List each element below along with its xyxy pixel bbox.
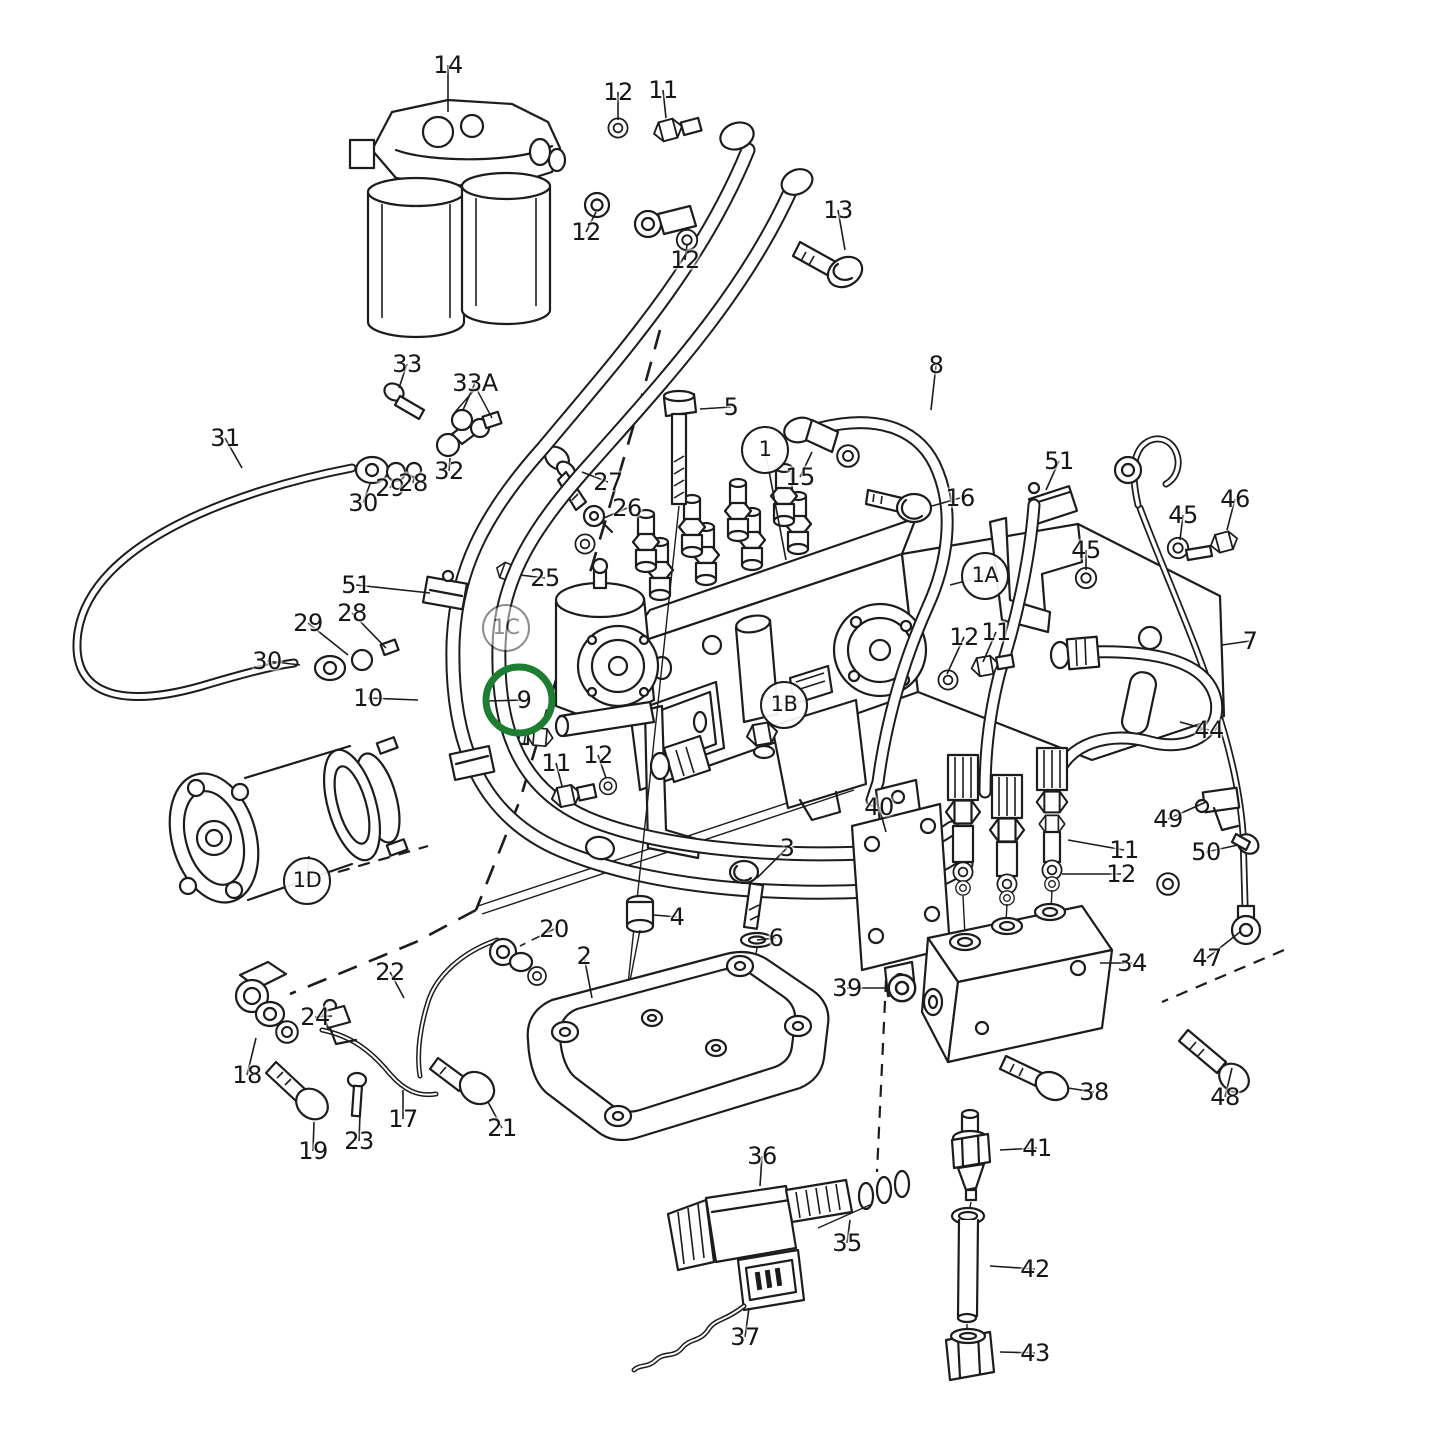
part-label-4[interactable]: 4 (670, 903, 685, 931)
part-label-28-1[interactable]: 28 (398, 469, 428, 497)
part-label-44[interactable]: 44 (1194, 716, 1224, 744)
part-label-13[interactable]: 13 (823, 196, 853, 224)
part-label-34[interactable]: 34 (1117, 949, 1147, 977)
part-label-37[interactable]: 37 (730, 1323, 760, 1351)
part-label-9[interactable]: 9 (517, 686, 532, 714)
part-label-42[interactable]: 42 (1020, 1255, 1050, 1283)
part-label-36[interactable]: 36 (747, 1142, 777, 1170)
part-label-41[interactable]: 41 (1022, 1134, 1052, 1162)
part-label-32[interactable]: 32 (434, 457, 464, 485)
part-label-15[interactable]: 15 (785, 463, 815, 491)
part-label-6[interactable]: 6 (769, 924, 784, 952)
part-label-39[interactable]: 39 (832, 974, 862, 1002)
part-label-11-2[interactable]: 11 (541, 749, 571, 777)
part-label-43[interactable]: 43 (1020, 1339, 1050, 1367)
part-label-12-3[interactable]: 12 (670, 246, 700, 274)
part-label-1C[interactable]: 1C (482, 604, 530, 652)
part-label-1D[interactable]: 1D (283, 857, 331, 905)
part-label-30-1[interactable]: 30 (348, 489, 378, 517)
part-label-11-1[interactable]: 11 (648, 76, 678, 104)
part-label-31[interactable]: 31 (210, 424, 240, 452)
part-label-12-2[interactable]: 12 (571, 218, 601, 246)
part-label-26[interactable]: 26 (612, 494, 642, 522)
part-label-21[interactable]: 21 (487, 1114, 517, 1142)
parts-diagram-canvas: 1412111212133333A31302928325272611516851… (0, 0, 1445, 1445)
part-label-30-2[interactable]: 30 (252, 647, 282, 675)
callout-labels-layer: 1412111212133333A31302928325272611516851… (0, 0, 1445, 1445)
part-label-11-4[interactable]: 11 (981, 618, 1011, 646)
part-label-14[interactable]: 14 (433, 51, 463, 79)
part-label-1A[interactable]: 1A (961, 552, 1009, 600)
part-label-38[interactable]: 38 (1079, 1078, 1109, 1106)
part-label-5[interactable]: 5 (724, 393, 739, 421)
part-label-22[interactable]: 22 (375, 958, 405, 986)
part-label-27[interactable]: 27 (593, 468, 623, 496)
part-label-24[interactable]: 24 (300, 1003, 330, 1031)
part-label-47[interactable]: 47 (1192, 944, 1222, 972)
part-label-50[interactable]: 50 (1191, 838, 1221, 866)
part-label-1[interactable]: 1 (741, 426, 789, 474)
part-label-29-2[interactable]: 29 (293, 609, 323, 637)
part-label-2[interactable]: 2 (577, 942, 592, 970)
part-label-1B[interactable]: 1B (760, 681, 808, 729)
part-label-12-6[interactable]: 12 (1106, 860, 1136, 888)
part-label-51-1[interactable]: 51 (1044, 447, 1074, 475)
part-label-7[interactable]: 7 (1243, 627, 1258, 655)
part-label-49[interactable]: 49 (1153, 805, 1183, 833)
part-label-10[interactable]: 10 (353, 684, 383, 712)
part-label-3[interactable]: 3 (780, 834, 795, 862)
part-label-16[interactable]: 16 (945, 484, 975, 512)
part-label-17[interactable]: 17 (388, 1105, 418, 1133)
part-label-19[interactable]: 19 (298, 1137, 328, 1165)
part-label-12-1[interactable]: 12 (603, 78, 633, 106)
part-label-46[interactable]: 46 (1220, 485, 1250, 513)
part-label-45-2[interactable]: 45 (1168, 501, 1198, 529)
part-label-33[interactable]: 33 (392, 350, 422, 378)
part-label-12-4[interactable]: 12 (949, 623, 979, 651)
part-label-51-2[interactable]: 51 (341, 571, 371, 599)
part-label-12-5[interactable]: 12 (583, 741, 613, 769)
part-label-18[interactable]: 18 (232, 1061, 262, 1089)
part-label-35[interactable]: 35 (832, 1229, 862, 1257)
part-label-33A[interactable]: 33A (452, 369, 497, 397)
part-label-20[interactable]: 20 (539, 915, 569, 943)
part-label-8[interactable]: 8 (929, 351, 944, 379)
part-label-48[interactable]: 48 (1210, 1083, 1240, 1111)
part-label-45-1[interactable]: 45 (1071, 536, 1101, 564)
part-label-28-2[interactable]: 28 (337, 599, 367, 627)
part-label-25[interactable]: 25 (530, 564, 560, 592)
part-label-23[interactable]: 23 (344, 1127, 374, 1155)
part-label-40[interactable]: 40 (864, 793, 894, 821)
